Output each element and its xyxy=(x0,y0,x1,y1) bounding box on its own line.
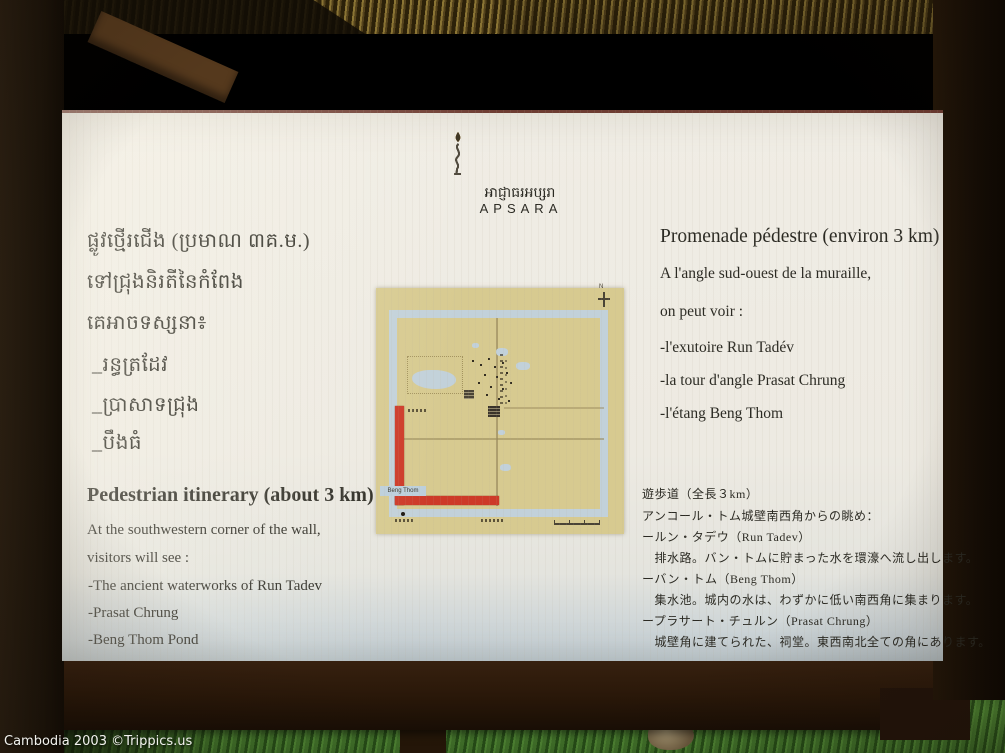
sign-light-sheen xyxy=(62,110,943,661)
photographer-watermark: Cambodia 2003 ©Trippics.us xyxy=(4,734,192,749)
wooden-left-post xyxy=(0,0,64,753)
photo-of-information-sign: អាជ្ញាធរអប្សរា APSARA ផ្លូវថ្មើរជើង (ប្រ… xyxy=(0,0,1005,753)
wooden-bottom-beam xyxy=(48,652,968,730)
